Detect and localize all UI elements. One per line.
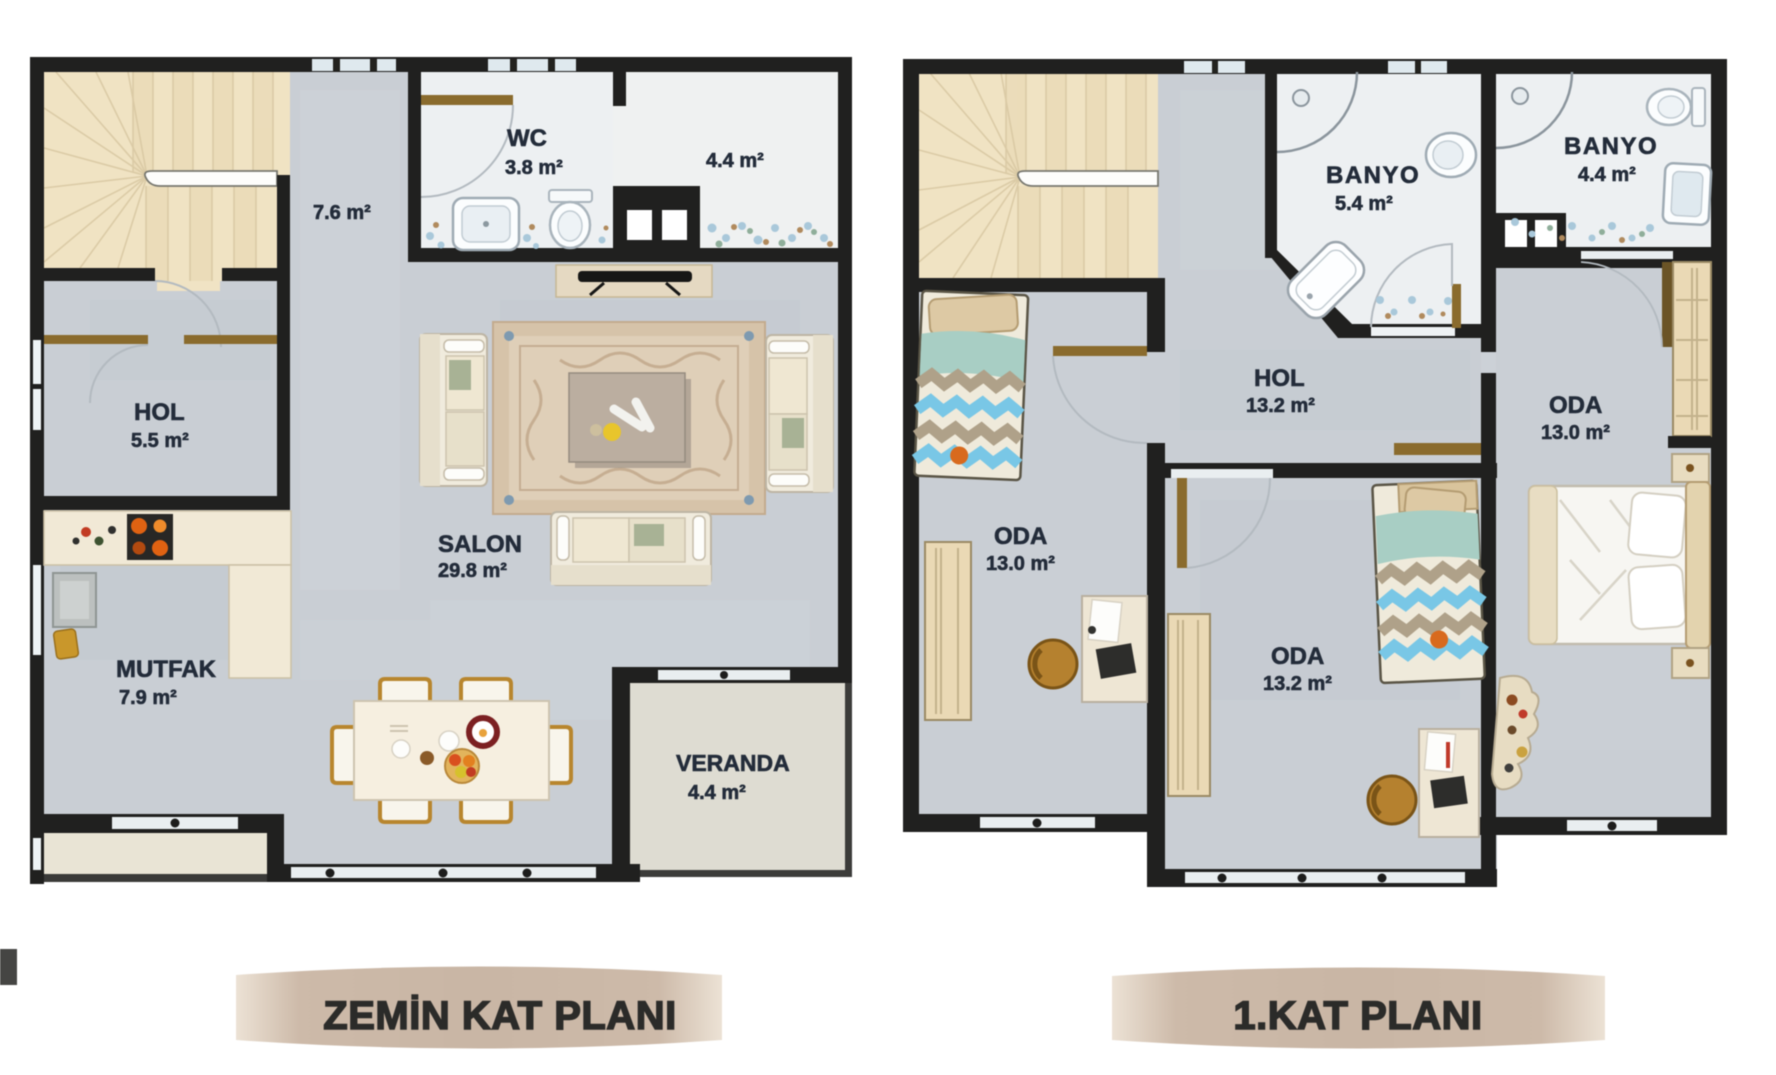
svg-text:13.2 m²: 13.2 m² <box>1263 673 1332 695</box>
svg-text:7.6 m²: 7.6 m² <box>313 202 371 224</box>
svg-text:5.5 m²: 5.5 m² <box>131 430 189 452</box>
svg-text:ODA: ODA <box>994 523 1047 550</box>
svg-text:3.8 m²: 3.8 m² <box>505 157 563 179</box>
svg-text:13.2 m²: 13.2 m² <box>1246 395 1315 417</box>
svg-text:ODA: ODA <box>1271 643 1324 670</box>
svg-text:SALON: SALON <box>438 531 522 558</box>
svg-text:WC: WC <box>507 125 547 152</box>
svg-text:ZEMİN KAT PLANI: ZEMİN KAT PLANI <box>323 994 676 1038</box>
svg-text:4.4 m²: 4.4 m² <box>706 150 764 172</box>
svg-text:BANYO: BANYO <box>1564 133 1658 160</box>
svg-text:ODA: ODA <box>1549 392 1602 419</box>
svg-text:HOL: HOL <box>134 399 185 426</box>
svg-text:13.0 m²: 13.0 m² <box>1541 422 1610 444</box>
svg-text:13.0 m²: 13.0 m² <box>986 553 1055 575</box>
svg-text:BANYO: BANYO <box>1326 162 1420 189</box>
svg-text:MUTFAK: MUTFAK <box>116 656 217 683</box>
svg-text:4.4 m²: 4.4 m² <box>688 782 746 804</box>
svg-text:HOL: HOL <box>1254 365 1305 392</box>
svg-text:1.KAT PLANI: 1.KAT PLANI <box>1233 994 1482 1038</box>
svg-text:VERANDA: VERANDA <box>676 750 790 776</box>
svg-text:7.9 m²: 7.9 m² <box>119 687 177 709</box>
svg-text:5.4 m²: 5.4 m² <box>1335 193 1393 215</box>
svg-text:29.8 m²: 29.8 m² <box>438 560 507 582</box>
svg-text:4.4 m²: 4.4 m² <box>1578 164 1636 186</box>
